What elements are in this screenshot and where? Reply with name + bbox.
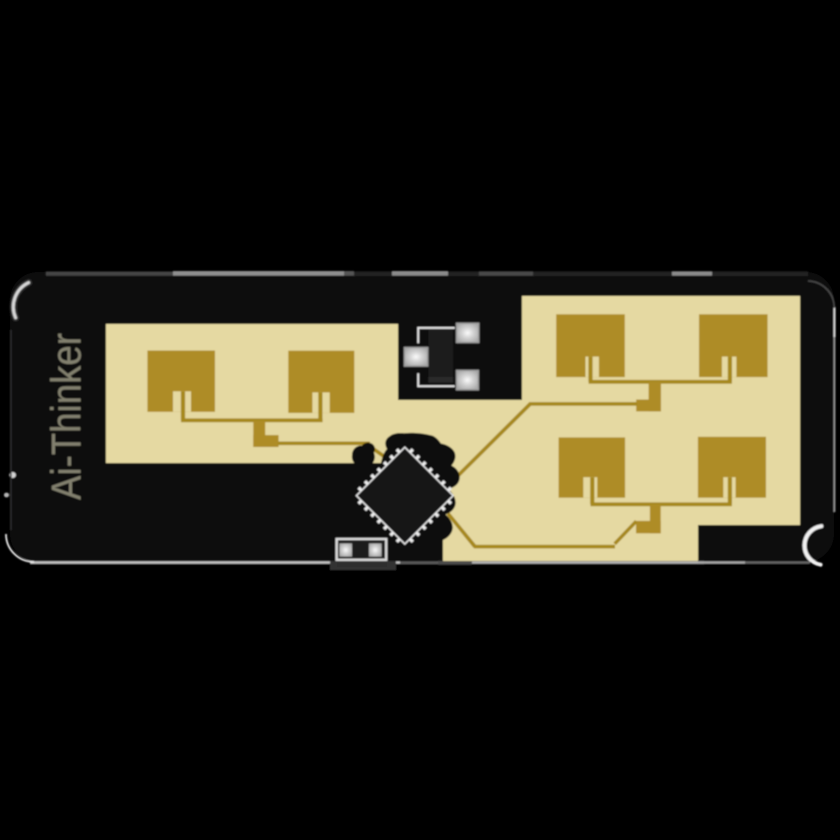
svg-text:Ai-Thinker: Ai-Thinker [43, 333, 90, 500]
